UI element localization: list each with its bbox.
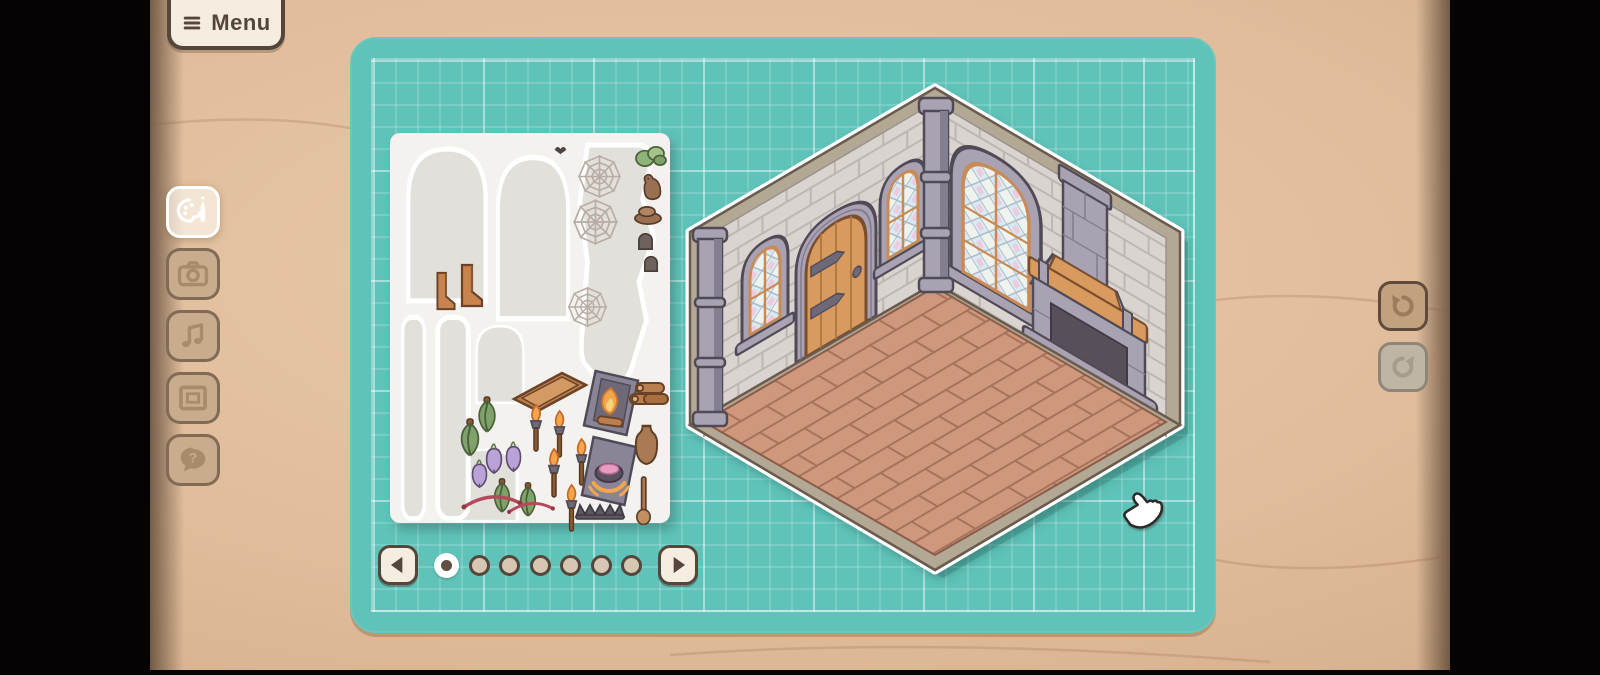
menu-button[interactable]: Menu bbox=[167, 0, 285, 50]
sticker-red-garland[interactable] bbox=[506, 495, 556, 517]
sticker-turnip[interactable] bbox=[504, 441, 523, 473]
sticker-log-pile[interactable] bbox=[628, 381, 670, 411]
sticker-fireplace-with-cauldron[interactable] bbox=[580, 435, 638, 507]
palette-icon bbox=[176, 195, 210, 229]
page-dot-3[interactable] bbox=[499, 555, 520, 576]
game-screen: Menu ? bbox=[0, 0, 1600, 675]
sticker-wooden-spoon[interactable] bbox=[634, 475, 653, 525]
sticker-fire-grate[interactable] bbox=[574, 499, 626, 521]
stone-pillar-left bbox=[693, 228, 727, 426]
help-icon: ? bbox=[176, 443, 210, 477]
letterbox-bottom bbox=[0, 670, 1600, 675]
frame-icon bbox=[176, 381, 210, 415]
sticker-rat[interactable] bbox=[640, 173, 664, 201]
letterbox-left bbox=[0, 0, 150, 675]
page-dot-2[interactable] bbox=[469, 555, 490, 576]
arrow-right-icon bbox=[665, 552, 691, 578]
sticker-rock-pile[interactable] bbox=[633, 203, 663, 226]
toolbar-camera-button[interactable] bbox=[166, 248, 220, 300]
toolbar-redo-button[interactable] bbox=[1378, 342, 1428, 392]
room-canvas[interactable] bbox=[678, 78, 1192, 582]
page-next-button[interactable] bbox=[658, 545, 698, 585]
toolbar-help-button[interactable]: ? bbox=[166, 434, 220, 486]
craft-board bbox=[350, 37, 1216, 633]
page-dot-1[interactable] bbox=[434, 553, 459, 578]
music-icon bbox=[176, 319, 210, 353]
page-dots bbox=[434, 553, 642, 578]
sticker-bat[interactable] bbox=[553, 143, 568, 155]
hamburger-icon bbox=[181, 12, 203, 34]
page-dot-4[interactable] bbox=[530, 555, 551, 576]
page-dot-6[interactable] bbox=[591, 555, 612, 576]
sticker-jug[interactable] bbox=[632, 423, 661, 473]
toolbar-frame-button[interactable] bbox=[166, 372, 220, 424]
arrow-left-icon bbox=[385, 552, 411, 578]
sticker-shelf-bracket[interactable] bbox=[458, 263, 486, 308]
camera-icon bbox=[176, 257, 210, 291]
sheet-pagination bbox=[378, 544, 698, 586]
page-dot-5[interactable] bbox=[560, 555, 581, 576]
page-dot-7[interactable] bbox=[621, 555, 642, 576]
sticker-moss-clump[interactable] bbox=[634, 143, 668, 168]
sticker-turnip[interactable] bbox=[470, 459, 489, 489]
toolbar-palette-button[interactable] bbox=[166, 186, 220, 238]
undo-icon bbox=[1388, 291, 1418, 321]
menu-button-label: Menu bbox=[211, 10, 270, 36]
toolbar-music-button[interactable] bbox=[166, 310, 220, 362]
svg-text:?: ? bbox=[189, 451, 198, 467]
redo-icon bbox=[1388, 352, 1418, 382]
letterbox-right bbox=[1450, 0, 1600, 675]
sticker-spiderweb[interactable] bbox=[571, 197, 620, 247]
sticker-herb-bunch[interactable] bbox=[454, 417, 486, 459]
toolbar-undo-button[interactable] bbox=[1378, 281, 1428, 331]
stone-pillar-corner bbox=[919, 98, 953, 292]
sticker-spiderweb[interactable] bbox=[576, 153, 623, 200]
sticker-stone[interactable] bbox=[637, 230, 654, 251]
column-sticker-outline bbox=[400, 313, 427, 523]
sticker-shelf-bracket[interactable] bbox=[434, 271, 458, 311]
sticker-torch[interactable] bbox=[524, 403, 548, 453]
sticker-stone[interactable] bbox=[643, 253, 659, 273]
sticker-sheet[interactable] bbox=[390, 133, 670, 523]
page-prev-button[interactable] bbox=[378, 545, 418, 585]
sticker-spiderweb[interactable] bbox=[566, 285, 609, 329]
window-sticker-outline bbox=[494, 151, 572, 323]
